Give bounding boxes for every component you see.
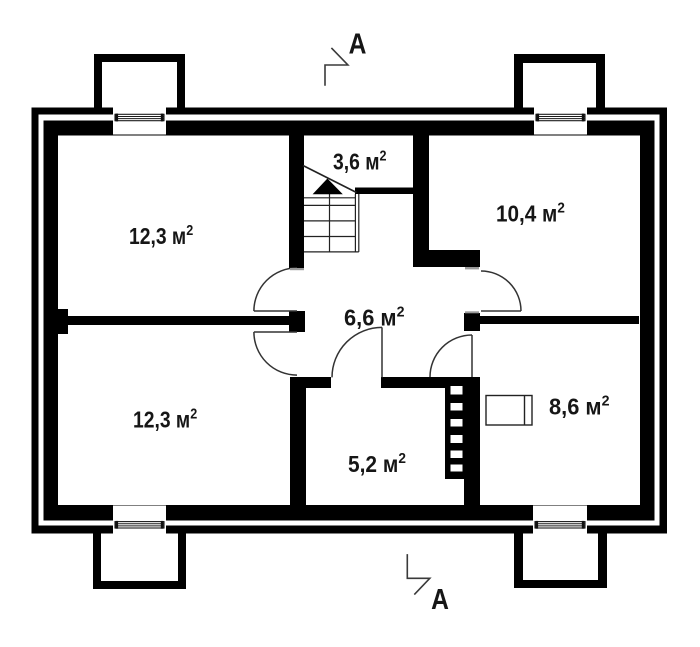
svg-text:12,3 м2: 12,3 м2 bbox=[129, 221, 193, 249]
svg-text:8,6 м2: 8,6 м2 bbox=[549, 393, 610, 419]
svg-text:12,3 м2: 12,3 м2 bbox=[133, 404, 197, 432]
svg-text:A: A bbox=[431, 583, 449, 615]
svg-text:6,6 м2: 6,6 м2 bbox=[344, 304, 405, 330]
svg-text:A: A bbox=[349, 28, 367, 60]
svg-text:5,2 м2: 5,2 м2 bbox=[348, 450, 406, 477]
svg-text:10,4 м2: 10,4 м2 bbox=[496, 200, 565, 227]
svg-text:3,6 м2: 3,6 м2 bbox=[333, 146, 387, 174]
